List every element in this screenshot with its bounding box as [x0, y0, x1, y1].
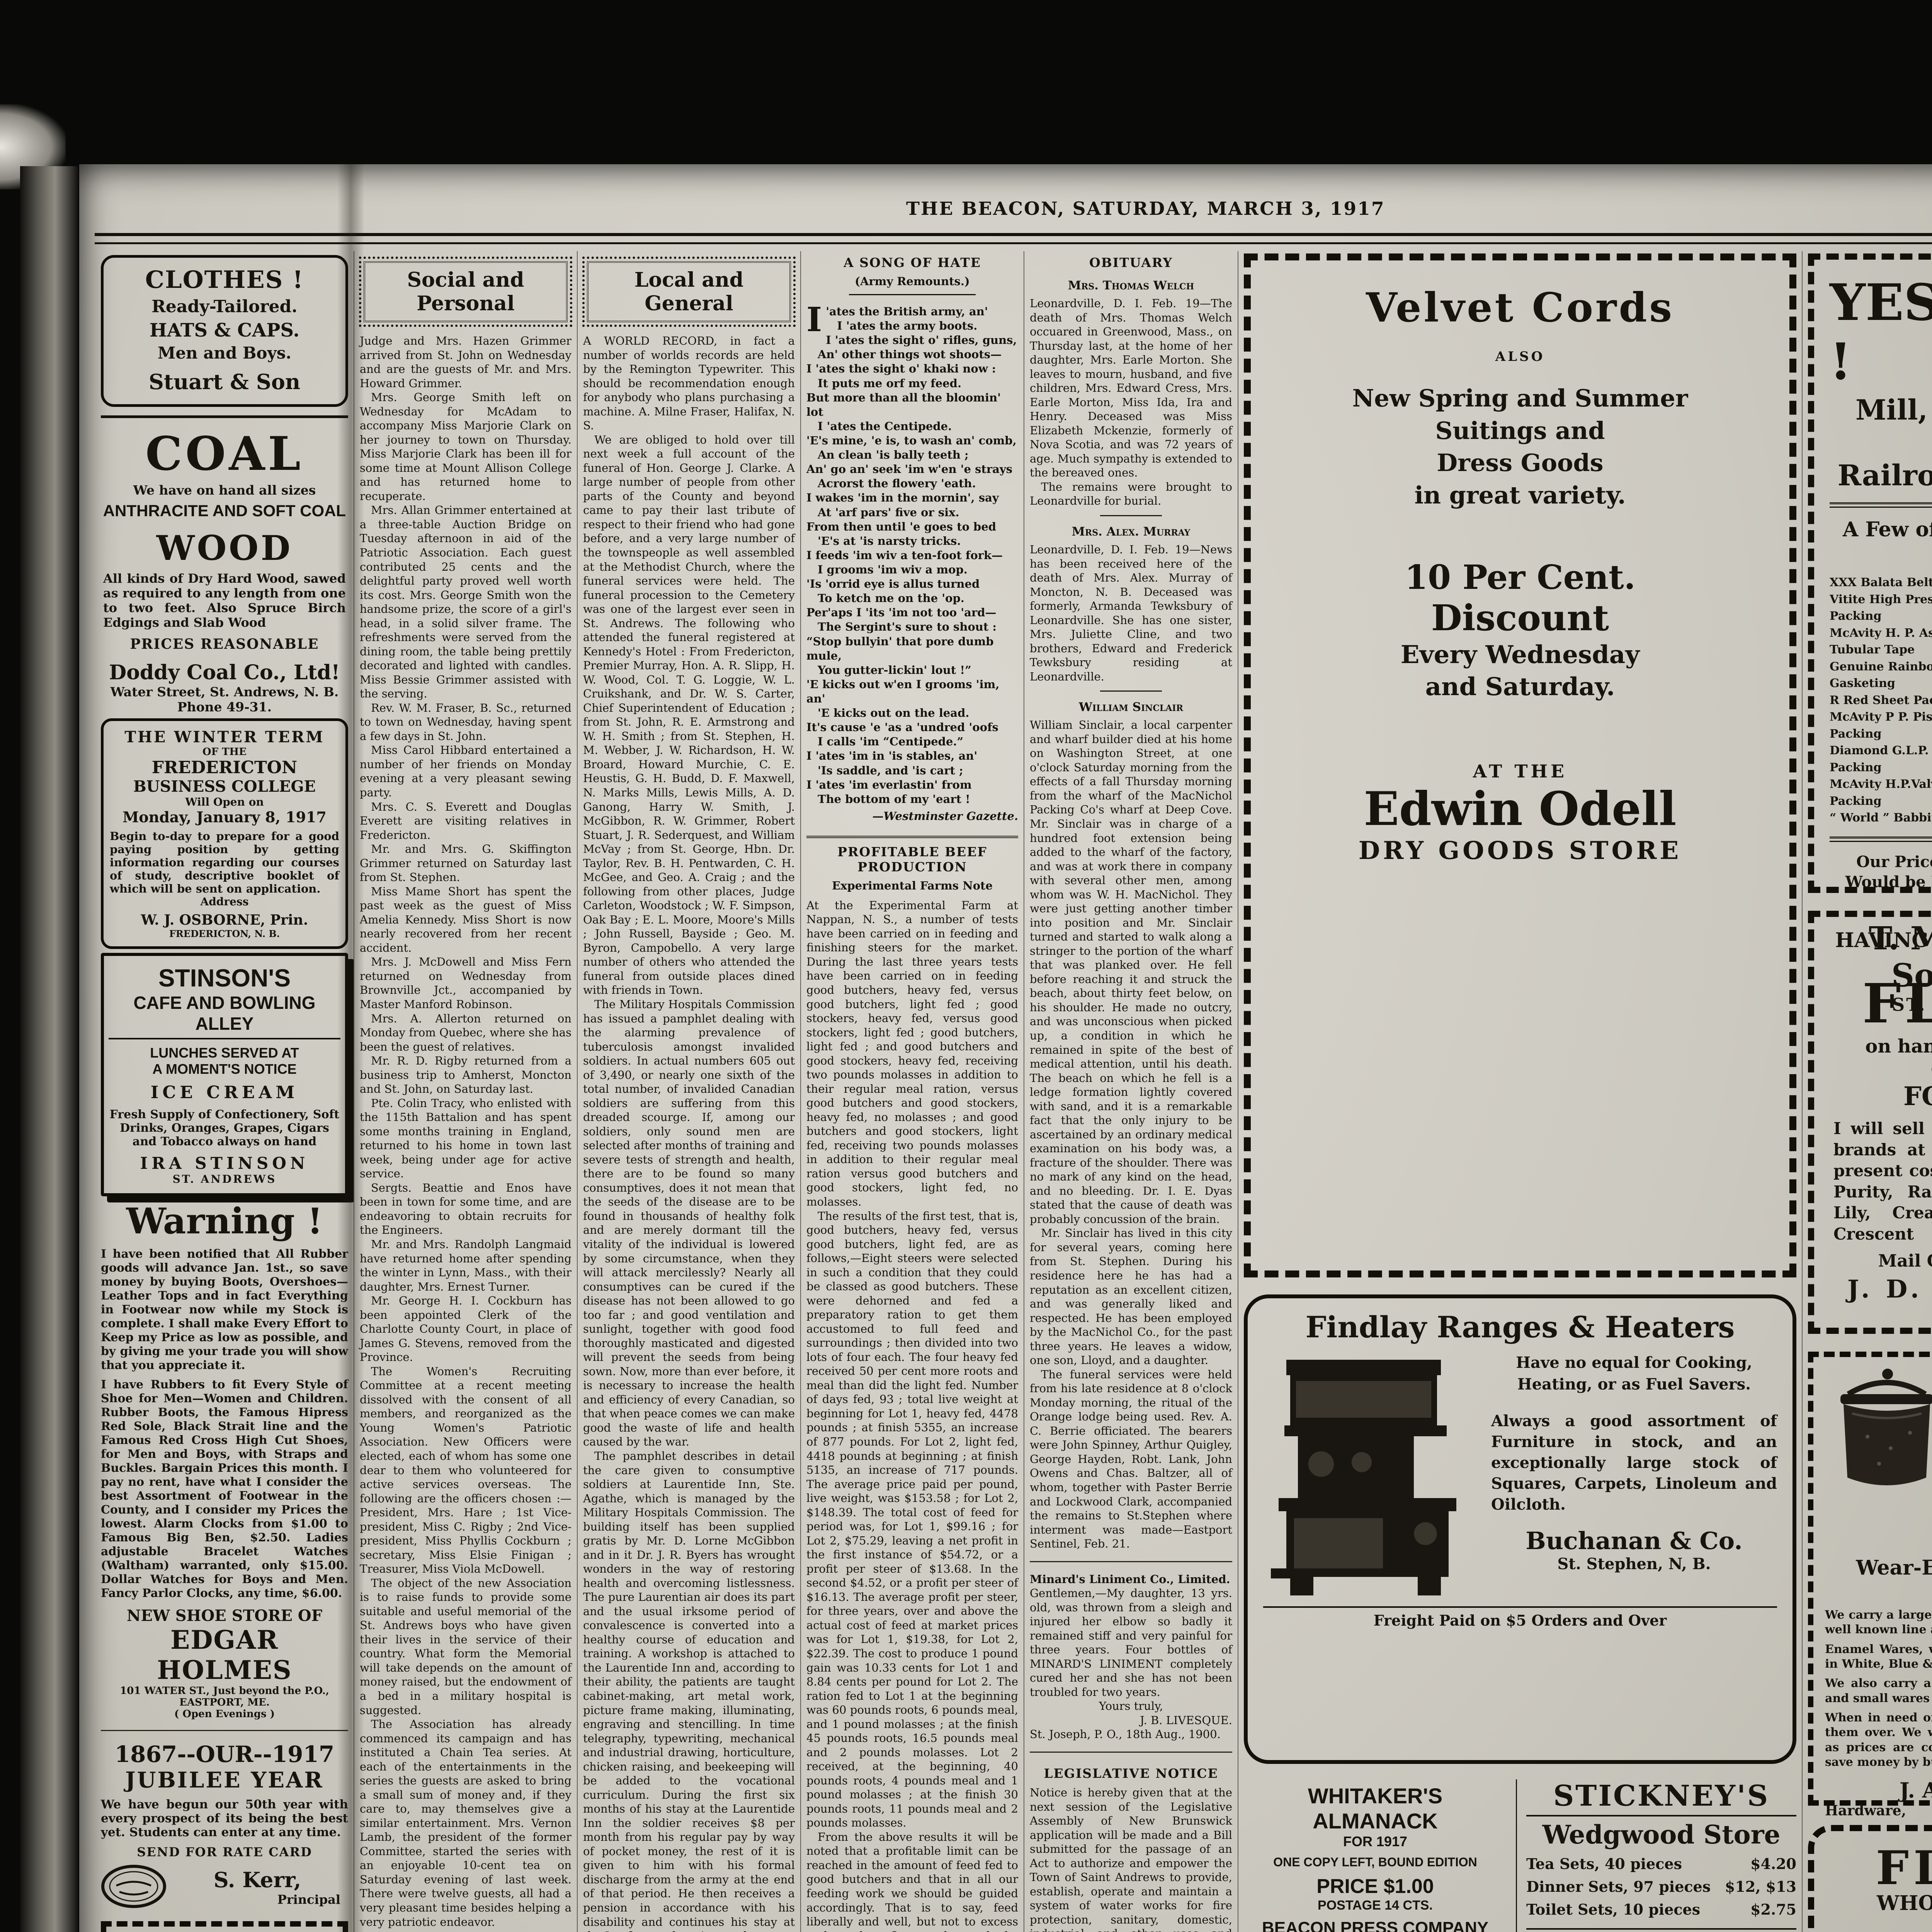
coal-line: ANTHRACITE AND SOFT COAL	[101, 502, 348, 520]
legislative-body: Notice is hereby given that at the next …	[1030, 1786, 1232, 1932]
beef-article: At the Experimental Farm at Nappan, N. S…	[806, 898, 1018, 1932]
minards-closing: Yours truly,	[1030, 1699, 1232, 1713]
flour-brands-body: I will sell any of the following brands …	[1833, 1118, 1932, 1245]
mcavity-ad: YES ! We Sell a Full Line —of— Mill, Ste…	[1808, 253, 1932, 893]
buchanan-firm: Buchanan & Co.	[1491, 1527, 1777, 1555]
edwin-odell-name: Edwin Odell	[1266, 782, 1774, 836]
wedgwood-store-label: Wedgwood Store	[1526, 1815, 1796, 1850]
shirley-paragraph: We carry a large and well assorted stock…	[1825, 1608, 1932, 1638]
specialties-col-left: XXX Balata Belting Vitite High Presure P…	[1830, 574, 1932, 827]
flour-headline: FLOUR	[1832, 1845, 1932, 1891]
findlay-ranges-ad: Findlay Ranges & Heaters	[1244, 1294, 1796, 1764]
velvet-line: New Spring and Summer	[1266, 382, 1774, 415]
mill-steamboat-line: Mill, Steamboat and	[1830, 393, 1932, 459]
whitakers-line: ONE COPY LEFT, BOUND EDITION	[1244, 1855, 1507, 1869]
railroad-supplies-line: Railroad Supplies	[1830, 459, 1932, 492]
whitakers-headline: WHITAKER'S ALMANACK	[1244, 1783, 1507, 1833]
holmes-address: 101 WATER ST., Just beyond the P.O., EAS…	[101, 1685, 348, 1708]
stinson-icecream: ICE CREAM	[109, 1083, 340, 1102]
column-ads-right: YES ! We Sell a Full Line —of— Mill, Ste…	[1802, 251, 1932, 1932]
ornament-rule	[1830, 502, 1932, 508]
stickney-owner: G. HAROLD STICKNEY	[1526, 1928, 1796, 1932]
social-personal-header: Social and Personal	[364, 261, 568, 322]
wedgwood-item: Dinner Sets, 97 pieces	[1526, 1878, 1711, 1895]
stinson-name: STINSON'S	[109, 964, 340, 992]
stinsons-ad: STINSON'S CAFE AND BOWLING ALLEY LUNCHES…	[101, 953, 348, 1196]
song-of-hate-headline: A SONG OF HATE	[806, 255, 1018, 270]
divider	[1030, 1561, 1232, 1562]
business-college-logo	[101, 1863, 167, 1911]
velvet-line: Dress Goods	[1266, 447, 1774, 479]
poem-dropcap: I	[806, 304, 826, 333]
stinson-city: ST. ANDREWS	[109, 1173, 340, 1185]
greenlaw-flour-ad: FLOUR WHOLESALE AND RETAIL Buy Now Befor…	[1808, 1825, 1932, 1932]
shirley-ad: COOKING UTENSILS Did you ever stop to th…	[1808, 1352, 1932, 1806]
findlay-body: Always a good assortment of Furniture in…	[1491, 1411, 1777, 1515]
stinson-owner: IRA STINSON	[109, 1154, 340, 1173]
jubilee-body: We have begun our 50th year with every p…	[101, 1798, 348, 1839]
coal-body: All kinds of Dry Hard Wood, sawed as req…	[101, 571, 348, 630]
minards-signature: J. B. LIVESQUE.	[1030, 1713, 1232, 1728]
stinson-body: Fresh Supply of Confectionery, Soft Drin…	[109, 1108, 340, 1148]
divider	[101, 415, 348, 418]
kerr-title: Principal	[167, 1892, 348, 1907]
holmes-store-line: NEW SHOE STORE OF	[101, 1607, 348, 1625]
wholesale-retail-line: WHOLESALE AND RETAIL	[1832, 1891, 1932, 1932]
velvet-cords-headline: Velvet Cords	[1266, 284, 1774, 331]
stickneys-headline: STICKNEY'S	[1526, 1779, 1796, 1813]
findlay-headline: Findlay Ranges & Heaters	[1263, 1310, 1777, 1344]
college-name: FREDERICTON	[110, 758, 339, 777]
beef-subtitle: Experimental Farms Note	[806, 879, 1018, 892]
cooking-pot-image	[1825, 1367, 1932, 1549]
flour-headline: FLOUR	[1833, 976, 1932, 1032]
columbian-regulator-ad: FOR HORSES AND CATTLE This is about the …	[101, 1921, 348, 1932]
coal-prices-line: PRICES REASONABLE	[101, 636, 348, 652]
grimmer-flour-ad: HAVING A LARGE STOCK OF FLOUR on hand th…	[1808, 911, 1932, 1334]
coal-address: Water Street, St. Andrews, N. B.	[101, 684, 348, 699]
centre-left-subcolumn: WHITAKER'S ALMANACK FOR 1917 ONE COPY LE…	[1244, 1779, 1517, 1932]
obituary-text: Leonardville, D. I. Feb. 19—The death of…	[1030, 296, 1232, 508]
whitakers-line: FOR 1917	[1244, 1833, 1507, 1850]
clothes-line: Ready-Tailored.	[107, 297, 342, 316]
business-college-ad: THE WINTER TERM OF THE FREDERICTON BUSIN…	[101, 718, 348, 949]
college-principal: W. J. OSBORNE, Prin.	[110, 912, 339, 928]
wood-headline: WOOD	[101, 528, 348, 568]
at-the-label: AT THE	[1266, 761, 1774, 782]
stinson-cafe: CAFE AND BOWLING ALLEY	[109, 992, 340, 1039]
edwin-odell-ad: Velvet Cords ALSO New Spring and Summer …	[1244, 253, 1796, 1277]
wedgwood-price: $4.20	[1750, 1855, 1796, 1872]
shirley-paragraph: Enamel Wares, we have a splendid assortm…	[1825, 1642, 1932, 1672]
freight-note: Freight Paid on $5 Orders and Over	[1263, 1606, 1777, 1629]
shirley-line: Hardware,	[1825, 1803, 1906, 1819]
college-city: FREDERICTON, N. B.	[110, 928, 339, 939]
exchange-line: on hand that I wish to exchange	[1833, 1036, 1932, 1079]
minards-testimonial: Minard's Liniment Co., Limited. Gentleme…	[1030, 1572, 1232, 1742]
shirley-firm: J. A. SHIRLEY	[1825, 1778, 1932, 1803]
holmes-name: EDGAR HOLMES	[101, 1625, 348, 1685]
shirley-paragraph: We also carry a well assorted line of Ti…	[1825, 1676, 1932, 1706]
stove-image	[1263, 1352, 1480, 1601]
whitakers-postage: POSTAGE 14 CTS.	[1244, 1898, 1507, 1913]
legislative-headline: LEGISLATIVE NOTICE	[1030, 1766, 1232, 1781]
dry-goods-store-label: DRY GOODS STORE	[1266, 836, 1774, 865]
prices-right-line: Our Prices are Right and We Would be Ple…	[1830, 852, 1932, 912]
obituary-headline: OBITUARY	[1030, 255, 1232, 270]
yes-headline: YES !	[1830, 273, 1932, 391]
ornament-rule	[1100, 515, 1162, 516]
column-local: Local and General A WORLD RECORD, in fac…	[577, 251, 800, 1932]
college-line: THE WINTER TERM	[110, 728, 339, 746]
poem-lines: 'ates the British army, an' I 'ates the …	[806, 304, 1018, 806]
jubilee-ratecard: SEND FOR RATE CARD	[101, 1845, 348, 1859]
clothes-headline: CLOTHES !	[107, 265, 342, 294]
beef-headline: PROFITABLE BEEF PRODUCTION	[806, 836, 1018, 874]
song-of-hate-subtitle: (Army Remounts.)	[806, 275, 1018, 288]
minards-body: Gentlemen,—My daughter, 13 yrs. old, was…	[1030, 1586, 1232, 1699]
newspaper-photo: THE BEACON, SATURDAY, MARCH 3, 1917 3 CL…	[0, 0, 1932, 1932]
coal-headline: COAL	[101, 427, 348, 481]
college-line: OF THE	[110, 746, 339, 758]
shirley-paragraph: When in need of these goods, call in and…	[1825, 1711, 1932, 1770]
obituary-name: William Sinclair	[1030, 700, 1232, 714]
beacon-press-name: BEACON PRESS COMPANY	[1244, 1918, 1507, 1932]
adjacent-page-edge	[20, 166, 78, 1932]
coal-phone: Phone 49-31.	[101, 699, 348, 714]
column-obituary: OBITUARY Mrs. Thomas Welch Leonardville,…	[1024, 251, 1238, 1932]
warning-headline: Warning !	[101, 1200, 348, 1242]
grimmer-firm: J. D. G R I M M E R	[1833, 1275, 1932, 1333]
minards-salutation: Minard's Liniment Co., Limited.	[1030, 1572, 1232, 1587]
ornament-rule	[849, 294, 976, 297]
columns: CLOTHES ! Ready-Tailored. HATS & CAPS. M…	[95, 251, 1932, 1932]
college-line: Will Open on	[110, 796, 339, 808]
obituary-text: Leonardville, D. I. Feb. 19—News has bee…	[1030, 543, 1232, 684]
findlay-line: Heating, or as Fuel Savers.	[1491, 1374, 1777, 1395]
holmes-note: ( Open Evenings )	[101, 1708, 348, 1720]
kerr-signature: S. Kerr,	[167, 1867, 348, 1892]
velvet-line: Suitings and	[1266, 415, 1774, 447]
warning-ad: Warning ! I have been notified that All …	[101, 1200, 348, 1720]
clothes-firm: Stuart & Son	[107, 369, 342, 394]
warning-paragraph: I have been notified that All Rubber goo…	[101, 1247, 348, 1372]
jubilee-ad: 1867--OUR--1917 JUBILEE YEAR We have beg…	[101, 1741, 348, 1911]
column-ads-left: CLOTHES ! Ready-Tailored. HATS & CAPS. M…	[95, 251, 354, 1932]
for-cash-line: FOR CASH	[1833, 1081, 1932, 1111]
buchanan-city: St. Stephen, N, B.	[1491, 1555, 1777, 1573]
ornament-rule	[1100, 690, 1162, 692]
masthead-rule	[95, 233, 1932, 244]
local-items: A WORLD RECORD, in fact a number of worl…	[583, 334, 795, 1932]
findlay-line: Have no equal for Cooking,	[1491, 1352, 1777, 1374]
centre-right-subcolumn: STICKNEY'S Wedgwood Store Tea Sets, 40 p…	[1517, 1779, 1796, 1932]
poem-credit: —Westminster Gazette.	[806, 810, 1018, 823]
minards-place: St. Joseph, P. O., 18th Aug., 1900.	[1030, 1727, 1232, 1742]
wedgwood-item: Toilet Sets, 10 pieces	[1526, 1901, 1700, 1918]
discount-line: and Saturday.	[1266, 671, 1774, 703]
clothes-line: Men and Boys.	[107, 344, 342, 362]
obituary-name: Mrs. Alex. Murray	[1030, 525, 1232, 539]
masthead-title: THE BEACON, SATURDAY, MARCH 3, 1917	[906, 198, 1385, 219]
mail-orders-line: Mail Orders Solicited	[1833, 1251, 1932, 1271]
wedgwood-price: $12, $13	[1725, 1878, 1796, 1895]
college-address-label: Address	[110, 895, 339, 908]
ornament-rule	[1830, 837, 1932, 842]
column-features: A SONG OF HATE (Army Remounts.) I 'ates …	[800, 251, 1024, 1932]
velvet-line: in great variety.	[1266, 479, 1774, 512]
clothes-ad: CLOTHES ! Ready-Tailored. HATS & CAPS. M…	[101, 255, 348, 407]
stickney-wedgwood-ad: STICKNEY'S Wedgwood Store Tea Sets, 40 p…	[1526, 1779, 1796, 1932]
warning-paragraph: I have Rubbers to fit Every Style of Sho…	[101, 1378, 348, 1600]
social-items: Judge and Mrs. Hazen Grimmer arrived fro…	[360, 334, 571, 1929]
also-label: ALSO	[1266, 349, 1774, 364]
divider	[1030, 1752, 1232, 1753]
stinson-line: A MOMENT'S NOTICE	[109, 1061, 340, 1077]
discount-line: Discount	[1266, 597, 1774, 639]
coal-line: We have on hand all sizes	[101, 483, 348, 498]
jubilee-years: 1867--OUR--1917	[101, 1741, 348, 1767]
stinson-line: LUNCHES SERVED AT	[109, 1045, 340, 1061]
specialties-label: A Few of Our Specialties Are	[1830, 518, 1932, 565]
coal-firm: Doddy Coal Co., Ltd!	[101, 661, 348, 684]
discount-line: Every Wednesday	[1266, 639, 1774, 671]
obituary-text: William Sinclair, a local carpenter and …	[1030, 718, 1232, 1551]
clothes-line: HATS & CAPS.	[107, 320, 342, 341]
college-name: BUSINESS COLLEGE	[110, 777, 339, 796]
column-social: Social and Personal Judge and Mrs. Hazen…	[354, 251, 577, 1932]
local-general-header: Local and General	[587, 261, 791, 322]
obituary-name: Mrs. Thomas Welch	[1030, 279, 1232, 293]
college-body: Begin to-day to prepare for a good payin…	[110, 830, 339, 895]
jubilee-headline: JUBILEE YEAR	[101, 1767, 348, 1793]
wedgwood-item: Tea Sets, 40 pieces	[1526, 1855, 1682, 1872]
column-centre-ads: Velvet Cords ALSO New Spring and Summer …	[1238, 251, 1802, 1932]
flour-stock-line: HAVING A LARGE STOCK OF	[1833, 929, 1932, 976]
newspaper-page: THE BEACON, SATURDAY, MARCH 3, 1917 3 CL…	[79, 164, 1932, 1932]
coal-ad: COAL We have on hand all sizes ANTHRACIT…	[101, 427, 348, 714]
wedgwood-price: $2.75	[1750, 1901, 1796, 1918]
wear-ever-headline: Wear-Ever Aluminium Ware	[1825, 1556, 1932, 1603]
divider	[101, 1730, 348, 1731]
whitakers-ad: WHITAKER'S ALMANACK FOR 1917 ONE COPY LE…	[1244, 1783, 1507, 1932]
whitakers-price: PRICE $1.00	[1244, 1875, 1507, 1898]
college-date: Monday, January 8, 1917	[110, 808, 339, 826]
discount-line: 10 Per Cent.	[1266, 558, 1774, 597]
